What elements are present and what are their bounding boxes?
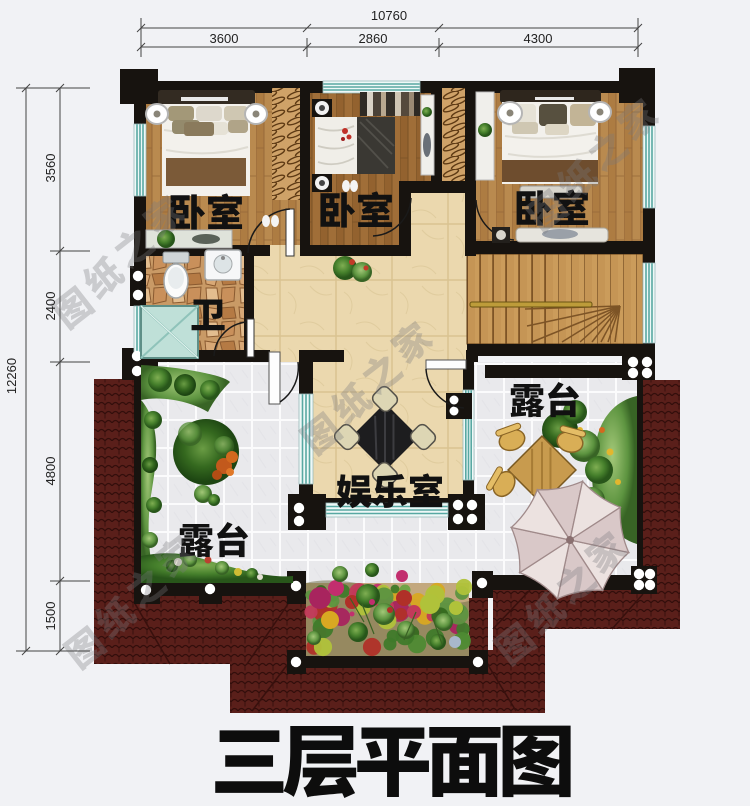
svg-text:3560: 3560 <box>43 154 58 183</box>
svg-text:2400: 2400 <box>43 292 58 321</box>
svg-text:4300: 4300 <box>524 31 553 46</box>
svg-text:1500: 1500 <box>43 602 58 631</box>
svg-text:3600: 3600 <box>210 31 239 46</box>
svg-text:2860: 2860 <box>359 31 388 46</box>
svg-text:10760: 10760 <box>371 8 407 23</box>
svg-text:4800: 4800 <box>43 457 58 486</box>
svg-text:12260: 12260 <box>4 358 19 394</box>
